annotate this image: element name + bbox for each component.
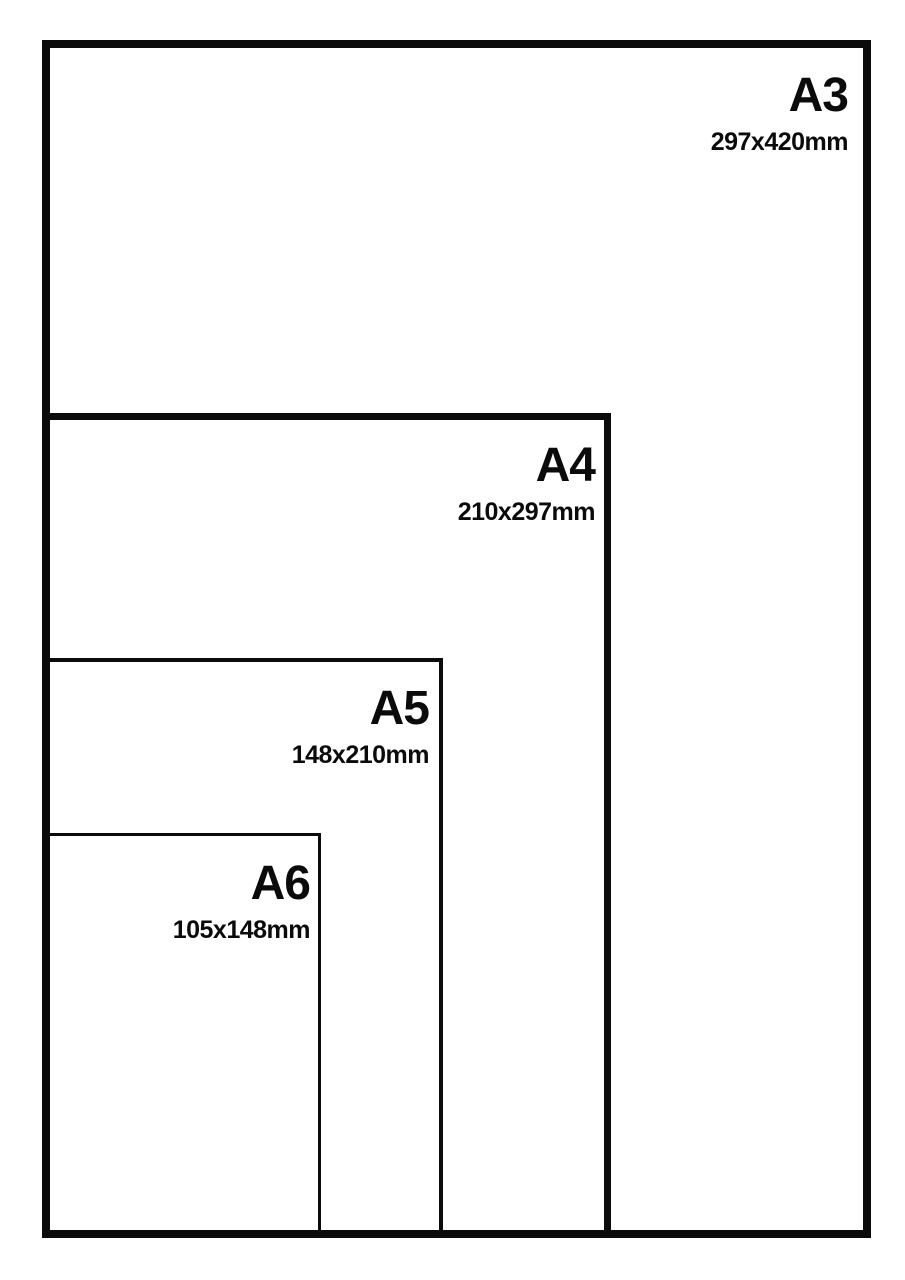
paper-size-diagram: A3 297x420mm A4 210x297mm A5 148x210mm A…	[0, 0, 905, 1280]
a3-size-dimensions: 297x420mm	[711, 130, 848, 155]
a4-size-dimensions: 210x297mm	[458, 500, 595, 525]
a5-size-dimensions: 148x210mm	[292, 743, 429, 768]
a5-label-block: A5 148x210mm	[292, 685, 429, 768]
a6-size-dimensions: 105x148mm	[173, 918, 310, 943]
a6-rectangle: A6 105x148mm	[42, 833, 321, 1238]
a4-label-block: A4 210x297mm	[458, 442, 595, 525]
a4-size-name: A4	[458, 442, 595, 490]
a3-size-name: A3	[711, 72, 848, 120]
a5-size-name: A5	[292, 685, 429, 733]
a6-label-block: A6 105x148mm	[173, 860, 310, 943]
a3-label-block: A3 297x420mm	[711, 72, 848, 155]
a6-size-name: A6	[173, 860, 310, 908]
